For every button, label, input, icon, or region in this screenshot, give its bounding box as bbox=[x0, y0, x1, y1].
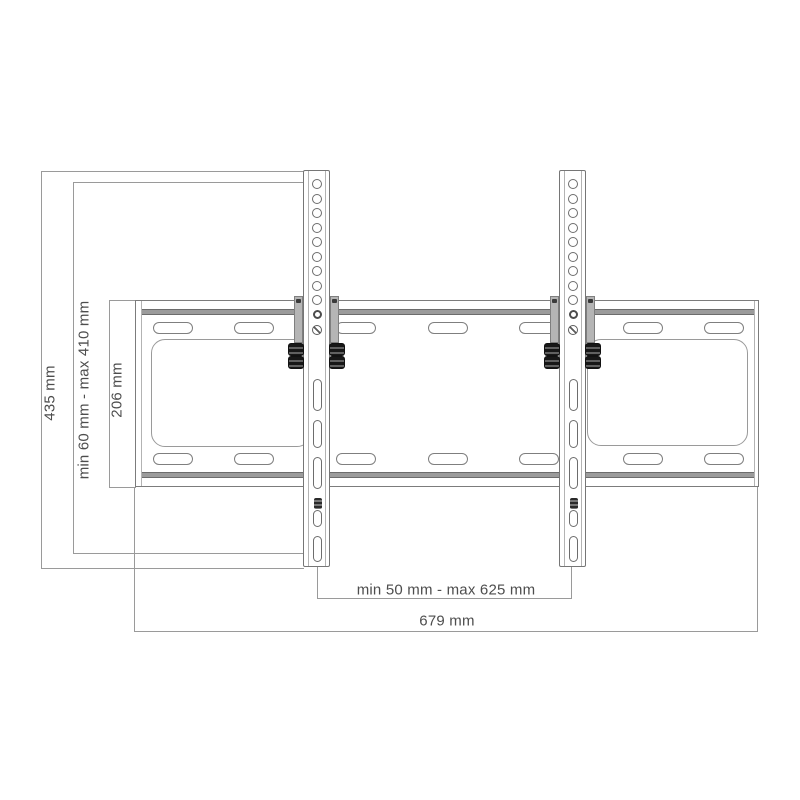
clamp-tab bbox=[550, 296, 559, 343]
wall-slot bbox=[234, 322, 274, 334]
dim-plate-width-extent bbox=[134, 487, 758, 632]
wall-slot bbox=[336, 453, 376, 465]
wall-slot bbox=[153, 453, 193, 465]
plate-emboss-right bbox=[587, 339, 748, 446]
slot-bolt bbox=[314, 498, 322, 509]
bracket-fold-right bbox=[325, 171, 326, 566]
wall-slot bbox=[428, 453, 468, 465]
lock-screw bbox=[313, 310, 322, 319]
dim-text-bracket-span: min 50 mm - max 625 mm bbox=[357, 582, 536, 599]
mounting-hole bbox=[568, 179, 578, 189]
wall-slot bbox=[234, 453, 274, 465]
adjustment-slot bbox=[569, 536, 578, 562]
tilt-bolt bbox=[585, 356, 601, 369]
dim-text-plate-width: 679 mm bbox=[419, 613, 474, 630]
plate-emboss-left bbox=[151, 339, 311, 447]
tilt-bolt bbox=[329, 356, 345, 369]
mounting-hole bbox=[568, 194, 578, 204]
plate-fold-left bbox=[141, 301, 142, 486]
tilt-bolt bbox=[288, 356, 304, 369]
adjustment-slot bbox=[569, 510, 578, 527]
dim-text-plate-height: 206 mm bbox=[109, 362, 126, 417]
mounting-hole bbox=[312, 295, 322, 305]
wall-slot bbox=[623, 322, 663, 334]
wall-slot bbox=[519, 453, 559, 465]
adjustment-slot bbox=[313, 536, 322, 562]
wall-slot bbox=[336, 322, 376, 334]
mounting-hole bbox=[568, 281, 578, 291]
dim-text-hole-range: min 60 mm - max 410 mm bbox=[76, 301, 93, 480]
adjustment-slot bbox=[313, 379, 322, 411]
clamp-tab bbox=[294, 296, 303, 343]
mounting-hole bbox=[568, 208, 578, 218]
bracket-fold-left bbox=[308, 171, 309, 566]
vesa-bracket-left bbox=[303, 170, 330, 567]
plate-fold-right bbox=[754, 301, 755, 486]
mounting-hole bbox=[568, 266, 578, 276]
mounting-hole bbox=[312, 179, 322, 189]
adjustment-slot bbox=[569, 379, 578, 411]
slot-bolt bbox=[570, 498, 578, 509]
tilt-bolt bbox=[544, 356, 560, 369]
tilt-bolt bbox=[544, 343, 560, 356]
mount-diagram: 435 mm min 60 mm - max 410 mm 206 mm min… bbox=[0, 0, 800, 800]
tilt-bolt bbox=[329, 343, 345, 356]
adjustment-slot bbox=[313, 420, 322, 448]
wall-slot bbox=[704, 453, 744, 465]
clamp-tab bbox=[330, 296, 339, 343]
mounting-hole bbox=[312, 208, 322, 218]
bracket-fold-left bbox=[564, 171, 565, 566]
clamp-tab bbox=[586, 296, 595, 343]
mounting-hole bbox=[312, 281, 322, 291]
lock-screw bbox=[569, 310, 578, 319]
set-screw bbox=[568, 325, 578, 335]
mounting-hole bbox=[568, 295, 578, 305]
tilt-bolt bbox=[288, 343, 304, 356]
wall-slot bbox=[153, 322, 193, 334]
tilt-bolt bbox=[585, 343, 601, 356]
dim-text-bracket-height: 435 mm bbox=[42, 365, 59, 420]
wall-slot bbox=[704, 322, 744, 334]
wall-slot bbox=[428, 322, 468, 334]
adjustment-slot bbox=[313, 510, 322, 527]
mounting-hole bbox=[568, 223, 578, 233]
mounting-hole bbox=[312, 237, 322, 247]
wall-slot bbox=[623, 453, 663, 465]
mounting-hole bbox=[312, 266, 322, 276]
mounting-hole bbox=[568, 237, 578, 247]
vesa-bracket-right bbox=[559, 170, 586, 567]
mounting-hole bbox=[568, 252, 578, 262]
set-screw bbox=[312, 325, 322, 335]
adjustment-slot bbox=[569, 420, 578, 448]
mounting-hole bbox=[312, 252, 322, 262]
mounting-hole bbox=[312, 194, 322, 204]
plate-bottom-flange bbox=[142, 472, 754, 478]
plate-top-flange bbox=[142, 309, 754, 315]
adjustment-slot bbox=[569, 457, 578, 489]
bracket-fold-right bbox=[581, 171, 582, 566]
wall-plate bbox=[135, 300, 759, 487]
adjustment-slot bbox=[313, 457, 322, 489]
mounting-hole bbox=[312, 223, 322, 233]
